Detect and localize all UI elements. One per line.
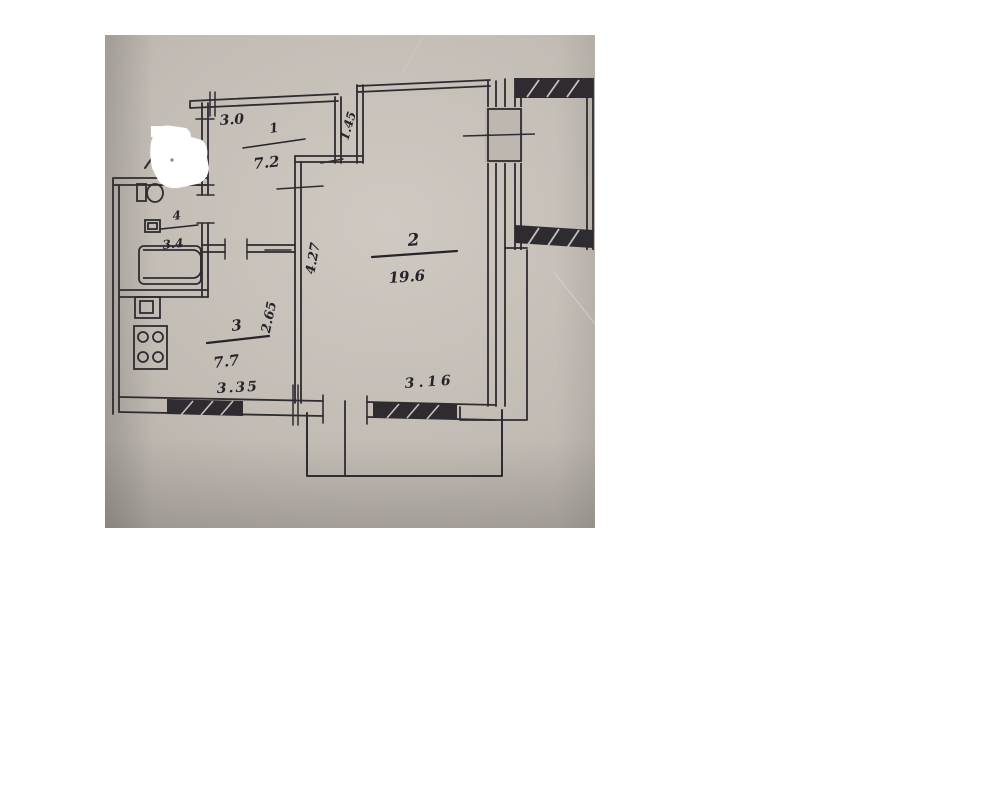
room-1-number: 1 — [268, 121, 279, 137]
toilet-icon — [137, 184, 163, 202]
dim-bottom-right-width: 3.16 — [404, 373, 455, 392]
room-2-number: 2 — [406, 230, 421, 251]
balcony-right — [515, 78, 593, 250]
dim-top-width: 3.0 — [219, 111, 245, 129]
room-3-area: 7.7 — [212, 351, 241, 372]
stove-icon — [134, 326, 167, 369]
kitchen-fixtures — [134, 297, 167, 369]
dim-room2-depth: 4.27 — [303, 241, 323, 275]
room-4-number: 4 — [172, 208, 182, 223]
dim-kitchen-depth: 2.65 — [259, 300, 280, 335]
room-2-area: 19.6 — [388, 266, 426, 287]
sink-icon — [135, 297, 160, 318]
washbasin-icon — [145, 220, 160, 232]
window-hatch — [527, 80, 579, 248]
bathroom-fixtures — [137, 184, 201, 284]
room-4-area: 3.4 — [162, 236, 184, 252]
floorplan-photo: 3.0 1 7.2 1.45 4.27 2 19.6 2.65 3 7.7 4 … — [105, 35, 595, 528]
dim-bottom-left-width: 3.35 — [216, 379, 259, 397]
white-patch — [150, 126, 209, 189]
floorplan-drawing: 3.0 1 7.2 1.45 4.27 2 19.6 2.65 3 7.7 4 … — [105, 35, 595, 528]
bathtub-icon — [139, 246, 201, 284]
room-3-number: 3 — [230, 316, 243, 335]
right-wall-window — [463, 107, 535, 163]
room-1-area: 7.2 — [253, 152, 281, 173]
